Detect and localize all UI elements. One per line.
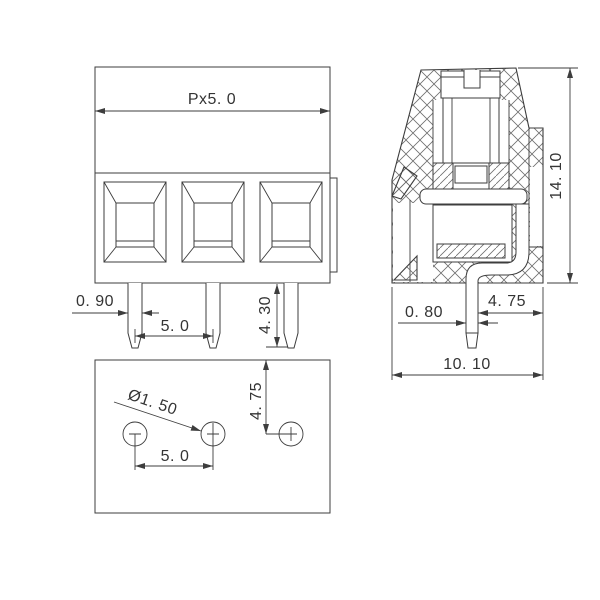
side-section-view: 14. 10 4. 75 0. 80 10. 10 [392,68,578,380]
dim-front-pitch-total: Px5. 0 [95,91,330,114]
dim-label-pin-length: 4. 30 [257,296,274,334]
front-side-tab [330,178,337,272]
screw-slot [464,70,480,88]
pcb-outline [95,360,330,513]
dim-hole-diameter: Ø1. 50 [114,387,202,434]
terminal-opening-3 [260,182,322,262]
dim-front-pin-pitch: 5. 0 [135,318,213,343]
hole-1 [123,422,147,470]
dim-label-overall-depth: 10. 10 [443,356,490,373]
technical-drawing: Px5. 0 0. 90 5. 0 4. 30 [0,0,600,600]
dim-front-pin-length: 4. 30 [257,284,288,347]
terminal-opening-2 [182,182,244,262]
dim-edge-to-hole: 4. 75 [248,360,297,434]
screw-shank [443,98,499,163]
dim-label-pin-to-edge: 4. 75 [488,293,526,310]
dim-label-edge-to-hole: 4. 75 [248,382,265,420]
screw-tip [455,166,487,183]
drawing-sheet: Px5. 0 0. 90 5. 0 4. 30 [0,0,600,600]
dim-label-hole-pitch: 5. 0 [161,448,190,465]
front-pin-3 [284,283,298,348]
dim-label-pin-pitch: 5. 0 [161,318,190,335]
wire-cavity-floor-hatch [437,244,505,258]
clamp-nut-left [433,163,453,191]
front-view: Px5. 0 0. 90 5. 0 4. 30 [72,67,337,348]
terminal-opening-1 [104,182,166,262]
hole-2 [201,422,225,470]
dim-label-pin-width: 0. 90 [76,293,114,310]
dim-label-pitch-total: Px5. 0 [188,91,236,108]
screw [441,70,500,163]
dim-label-overall-height: 14. 10 [548,152,565,199]
dim-hole-pitch: 5. 0 [135,448,213,469]
dim-label-pin-thickness: 0. 80 [405,304,443,321]
dim-label-hole-diameter: Ø1. 50 [126,387,180,419]
dim-front-pin-width: 0. 90 [72,293,159,316]
clamp-bar [420,189,527,204]
clamp-nut-right [489,163,509,191]
dim-pin-to-edge: 4. 75 [478,293,543,316]
pcb-footprint-view: Ø1. 50 5. 0 4. 75 [95,360,330,513]
side-pin-tip [466,333,478,348]
dim-pin-thickness: 0. 80 [398,304,498,326]
